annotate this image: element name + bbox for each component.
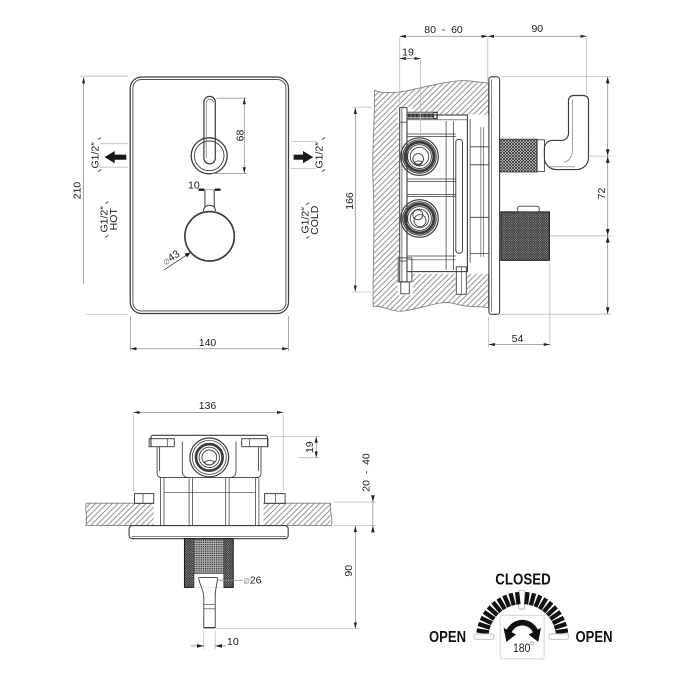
svg-text:72: 72 xyxy=(596,188,608,200)
svg-text:210: 210 xyxy=(72,182,84,200)
svg-text:HOT: HOT xyxy=(108,208,120,231)
svg-text:166: 166 xyxy=(344,192,356,210)
svg-text:OPEN: OPEN xyxy=(429,629,466,646)
svg-text:54: 54 xyxy=(512,333,524,345)
svg-text:10: 10 xyxy=(227,636,239,648)
svg-text:OPEN: OPEN xyxy=(576,629,613,646)
svg-text:68: 68 xyxy=(234,130,246,142)
svg-text:G1/2″: G1/2″ xyxy=(89,142,101,169)
svg-text:20 - 40: 20 - 40 xyxy=(361,453,373,492)
svg-text:10: 10 xyxy=(188,180,200,192)
svg-text:90: 90 xyxy=(343,565,355,577)
svg-text:80 - 60: 80 - 60 xyxy=(424,24,463,36)
svg-text:136: 136 xyxy=(199,400,217,412)
svg-text:19: 19 xyxy=(402,46,414,58)
svg-text:140: 140 xyxy=(199,337,217,349)
svg-text:180: 180 xyxy=(513,643,531,655)
svg-text:COLD: COLD xyxy=(309,205,321,235)
svg-text:⌀26: ⌀26 xyxy=(244,575,262,587)
svg-text:G1/2″: G1/2″ xyxy=(314,142,326,169)
svg-text:90: 90 xyxy=(531,23,543,35)
svg-text:19: 19 xyxy=(304,441,316,453)
svg-text:CLOSED: CLOSED xyxy=(495,572,551,589)
